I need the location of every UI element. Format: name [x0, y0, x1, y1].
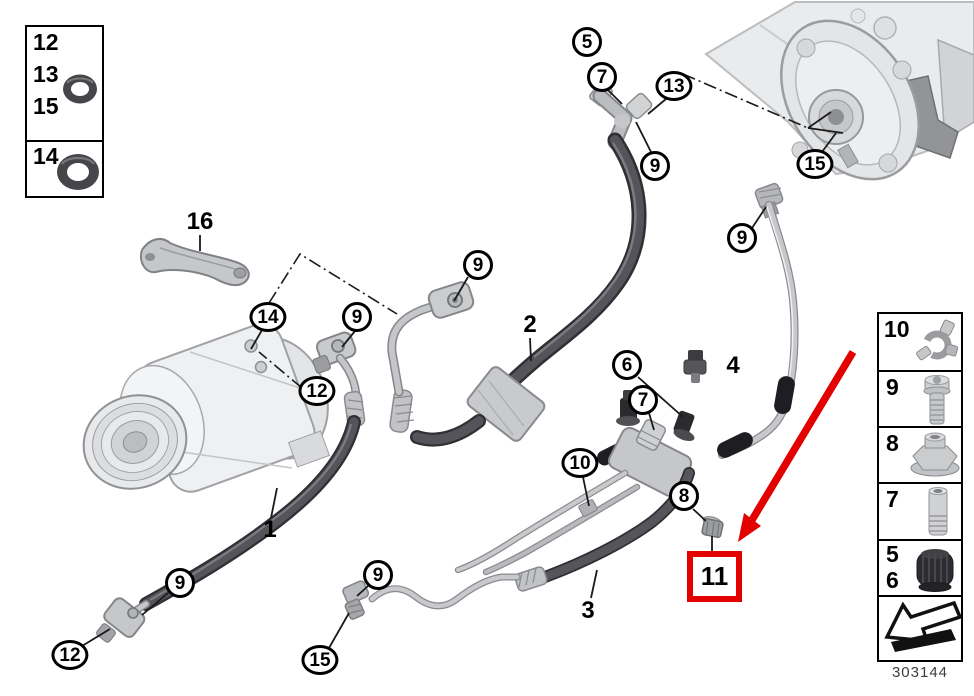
callout-5: 5 — [572, 27, 602, 57]
legend-label: 15 — [33, 95, 59, 118]
label-2: 2 — [523, 313, 536, 337]
callout-9-hose2: 9 — [463, 250, 493, 280]
callout-9-bottom-mid: 9 — [363, 560, 393, 590]
sensor-part-4 — [684, 350, 706, 383]
callout-9-hose1: 9 — [342, 302, 372, 332]
label-1: 1 — [263, 518, 276, 542]
callout-10: 10 — [561, 448, 598, 478]
pressure-sensor — [672, 410, 696, 444]
compressor — [70, 318, 344, 503]
callout-9-y-connector: 9 — [640, 151, 670, 181]
right-legend-row-8: 8 — [879, 426, 961, 482]
right-legend-box: 10 9 8 — [877, 312, 963, 662]
hose-2-flange-fitting — [427, 280, 476, 320]
label-3: 3 — [581, 599, 594, 623]
bracket-16-part — [141, 239, 249, 285]
o-ring-small-icon — [59, 70, 101, 108]
left-legend-box: 12 13 15 14 — [25, 25, 104, 198]
doc-number: 303144 — [874, 664, 966, 681]
legend-label: 7 — [886, 488, 899, 511]
callout-14: 14 — [249, 302, 286, 332]
legend-label: 12 — [33, 31, 59, 54]
sealing-cap-icon — [913, 545, 957, 593]
right-legend-row-7: 7 — [879, 482, 961, 539]
parts-diagram: 12 13 15 14 10 — [0, 0, 974, 696]
highlight-arrow — [738, 352, 853, 542]
legend-label: 8 — [886, 432, 899, 455]
legend-label: 13 — [33, 63, 59, 86]
right-legend-row-5-6: 5 6 — [879, 539, 961, 595]
wavy-pipe-fitting — [342, 580, 370, 620]
left-legend-row-2: 14 — [27, 140, 102, 194]
left-legend-row-1: 12 13 15 — [27, 27, 102, 140]
legend-label: 10 — [884, 318, 910, 341]
foam-sleeve — [714, 429, 755, 460]
callout-12-bottom-left: 12 — [51, 640, 88, 670]
label-11: 11 — [701, 561, 729, 592]
legend-label: 5 — [886, 543, 899, 566]
label-4: 4 — [726, 354, 739, 378]
sleeve-icon — [923, 486, 953, 539]
callout-7-valve: 7 — [628, 385, 658, 415]
direction-arrow-icon — [881, 597, 963, 652]
flange-nut-icon — [907, 432, 963, 480]
callout-15-bottom-mid: 15 — [301, 645, 338, 675]
right-legend-row-9: 9 — [879, 370, 961, 426]
bolt-icon — [917, 374, 957, 428]
union-nut-part — [702, 515, 724, 538]
right-legend-row-10: 10 — [879, 314, 961, 370]
callout-9-bottom-left: 9 — [165, 568, 195, 598]
right-legend-row-arrow — [879, 595, 961, 650]
callout-6: 6 — [612, 350, 642, 380]
callout-9-pipe-top: 9 — [727, 223, 757, 253]
foam-sleeve — [773, 375, 796, 415]
callout-15-engine: 15 — [796, 149, 833, 179]
legend-label: 9 — [886, 376, 899, 399]
hose-2 — [389, 140, 639, 443]
compressor-port-lower — [256, 362, 267, 373]
twin-pipes — [458, 473, 637, 572]
diagram-artwork — [0, 0, 974, 696]
callout-7-top: 7 — [587, 62, 617, 92]
o-ring-large-icon — [53, 150, 103, 194]
callout-8: 8 — [669, 481, 699, 511]
callout-12-compressor: 12 — [298, 376, 335, 406]
highlight-box-11: 11 — [687, 551, 742, 602]
pipe-clamp-icon — [915, 317, 961, 369]
callout-13: 13 — [655, 71, 692, 101]
legend-label: 6 — [886, 569, 899, 592]
engine-assembly — [706, 0, 974, 218]
label-16: 16 — [187, 210, 214, 234]
